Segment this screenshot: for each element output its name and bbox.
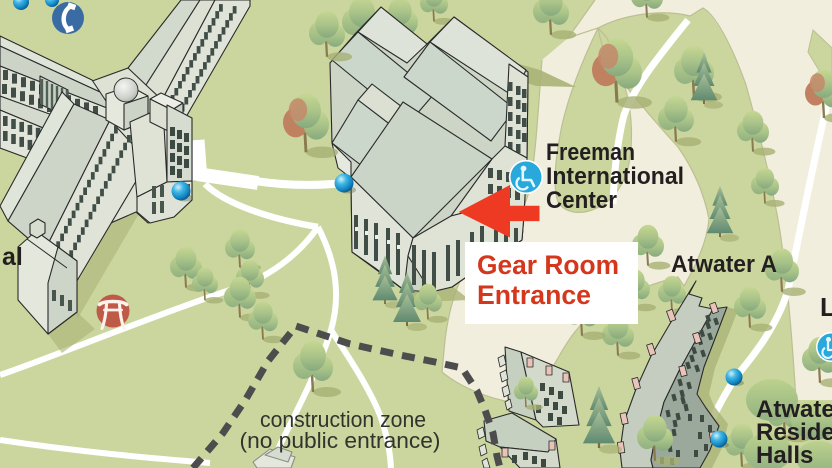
svg-text:Freeman: Freeman (546, 139, 635, 166)
svg-text:al: al (2, 243, 23, 271)
svg-text:Entrance: Entrance (477, 280, 591, 310)
svg-text:Halls: Halls (756, 442, 813, 468)
svg-text:Atwater A: Atwater A (671, 251, 777, 278)
svg-text:International: International (546, 163, 684, 190)
svg-text:Center: Center (546, 187, 617, 214)
svg-text:Gear Room: Gear Room (477, 250, 619, 280)
svg-text:(no public entrance): (no public entrance) (240, 428, 441, 453)
svg-text:L: L (820, 292, 832, 322)
